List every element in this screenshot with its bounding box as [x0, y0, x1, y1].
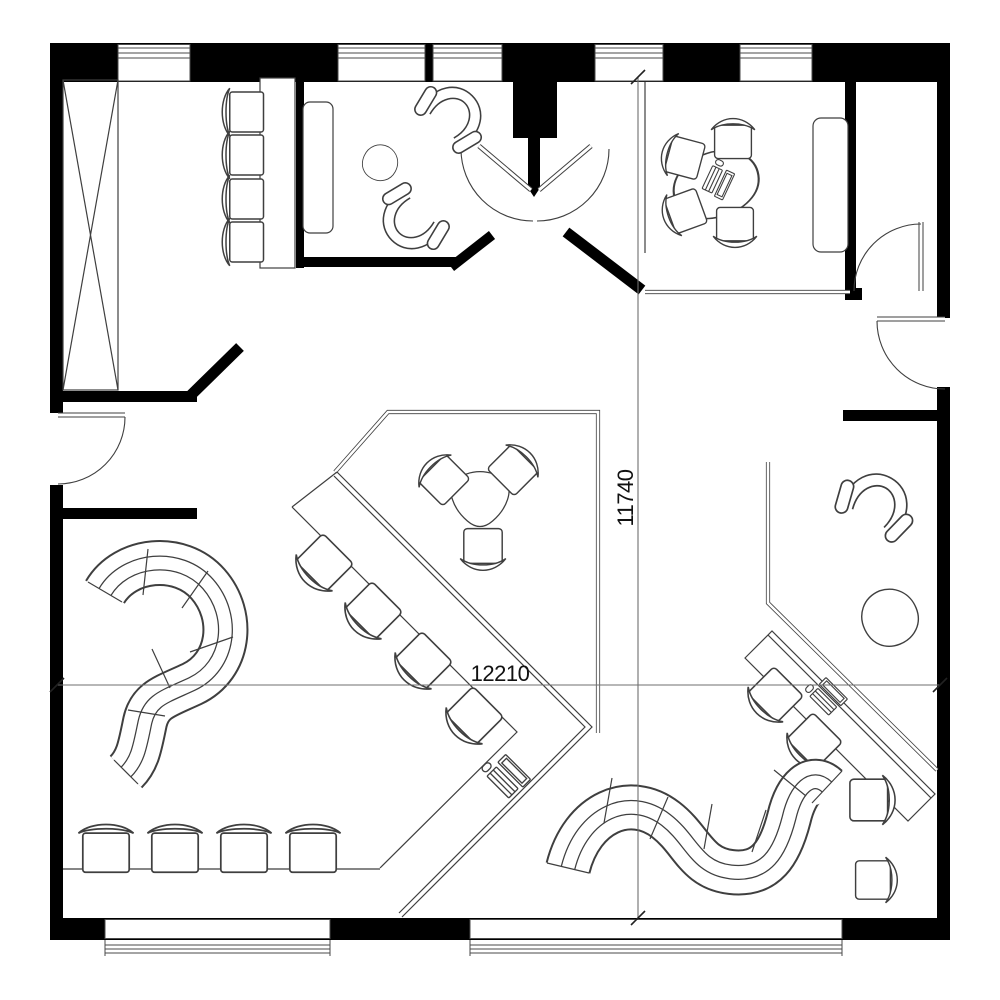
wall-right-lower	[937, 387, 950, 940]
chair	[711, 119, 755, 159]
window	[595, 45, 663, 82]
wall-right-upper	[937, 43, 950, 318]
chair	[856, 857, 898, 903]
chair	[850, 775, 895, 824]
reception-counter-area	[222, 78, 295, 268]
window	[338, 45, 425, 82]
wall-left-mid-lower	[50, 508, 197, 519]
wall-room1-south	[300, 257, 458, 267]
chair	[713, 207, 757, 247]
bench	[813, 118, 848, 252]
window	[118, 45, 190, 82]
wall-left-lower	[50, 485, 63, 918]
floor-plan-canvas: 12210 11740	[0, 0, 1000, 1000]
wall-vestibule-south	[843, 410, 937, 421]
counter-top-left	[260, 78, 295, 268]
dimension-label-horizontal: 12210	[471, 661, 530, 686]
window	[433, 45, 502, 82]
wall-left-mid-upper	[50, 391, 197, 402]
wall-left-upper	[50, 43, 63, 413]
chair	[460, 529, 506, 571]
bench	[303, 102, 333, 233]
window	[740, 45, 812, 82]
dimension-label-vertical: 11740	[613, 469, 638, 526]
